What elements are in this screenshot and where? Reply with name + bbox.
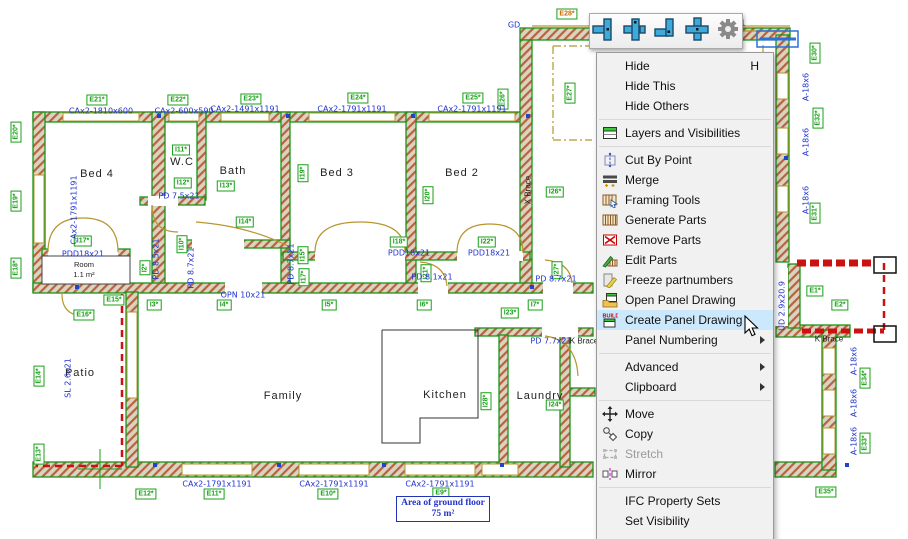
cad-label-gd: GD [508,21,520,30]
menu-item-label: Layers and Visibilities [625,126,773,140]
menu-item-label: Set Visibility [625,514,773,528]
menu-item-label: Hide Others [625,99,773,113]
merge-icon [600,172,620,188]
wall-junction-corner-button[interactable] [653,18,680,45]
menu-item-label: Hide This [625,79,773,93]
freeze-icon [600,272,620,288]
edit-icon [600,252,620,268]
cad-label-a-18x6: A-18x6 [850,347,859,375]
menu-item-move[interactable]: Move [597,404,773,424]
part-tag-i12[interactable]: I12* [174,178,192,189]
part-tag-e30[interactable]: E30* [810,42,821,63]
part-tag-e28[interactable]: E28* [556,9,577,20]
part-tag-e23[interactable]: E23* [240,94,261,105]
menu-item-icon-empty [600,493,620,509]
menu-item-label: Advanced [625,360,760,374]
cad-label-cax2-1791x1191: CAx2-1791x1191 [182,480,251,489]
menu-item-label: Mirror [625,467,773,481]
part-tag-e35[interactable]: E35* [815,487,836,498]
menu-separator [599,119,771,120]
cad-label-cax2-1491x1191: CAx2-1491x1191 [210,105,279,114]
openpanel-icon [600,292,620,308]
room-label-bed-3: Bed 3 [320,167,354,179]
menu-item-hide[interactable]: HideH [597,56,773,76]
part-tag-e25[interactable]: E25* [462,93,483,104]
part-tag-e16[interactable]: E16* [73,310,94,321]
submenu-arrow-icon [760,363,765,371]
part-tag-i7[interactable]: I7* [528,300,543,311]
wall-junction-toolbar [589,13,743,49]
cad-label-a-18x6: A-18x6 [850,389,859,417]
stretch-icon [600,446,620,462]
menu-item-label: Remove Parts [625,233,773,247]
part-tag-i3[interactable]: I3* [147,300,162,311]
cad-label-sl-2-6x21: SL 2.6x21 [64,358,73,398]
menu-item-remove-parts[interactable]: Remove Parts [597,230,773,250]
menu-item-hide-this[interactable]: Hide This [597,76,773,96]
area-annotation-line1: Area of ground floor [397,498,489,509]
area-annotation-box[interactable]: Area of ground floor 75 m² [396,496,490,522]
cad-label-opn-10x21: OPN 10x21 [221,291,266,300]
menu-item-hide-others[interactable]: Hide Others [597,96,773,116]
part-tag-e12[interactable]: E12* [135,489,156,500]
part-tag-e27[interactable]: E27* [565,82,576,103]
part-tag-e10[interactable]: E10* [317,489,338,500]
layers-icon [600,125,620,141]
menu-item-advanced[interactable]: Advanced [597,357,773,377]
brace-label-x-brace: X Brace [524,176,533,204]
part-tag-i5[interactable]: I5* [322,300,337,311]
remove-icon [600,232,620,248]
part-tag-i15[interactable]: I15* [298,246,309,264]
part-tag-e14[interactable]: E14* [34,365,45,386]
cad-label-ud-2-9x20-9: UD 2.9x20.9 [778,281,787,331]
cad-label-pd-8-1x21: PD 8.1x21 [411,273,452,282]
menu-item-open-panel-drawing[interactable]: Open Panel Drawing [597,290,773,310]
menu-item-icon-empty [600,379,620,395]
move-icon [600,406,620,422]
part-tag-e32[interactable]: E32* [813,107,824,128]
copy-icon [600,426,620,442]
menu-item-label: Framing Tools [625,193,773,207]
mirror-icon [600,466,620,482]
cad-label-cax2-600x590: CAx2-600x590 [154,107,213,116]
cad-label-pd-8-5x21: PD 8.5x21 [152,238,161,279]
menu-item-icon-empty [600,332,620,348]
menu-item-label: IFC Property Sets [625,494,773,508]
cad-label-cax2-1791x1191: CAx2-1791x1191 [70,175,79,244]
context-menu: HideHHide ThisHide OthersLayers and Visi… [596,52,774,539]
part-tag-e18[interactable]: E18* [11,257,22,278]
menu-item-label: Open Panel Drawing [625,293,773,307]
menu-separator [599,146,771,147]
menu-item-label: Clipboard [625,380,760,394]
menu-item-icon-empty [600,359,620,375]
cut-icon [600,152,620,168]
part-tag-e21[interactable]: E21* [86,95,107,106]
room-label-bed-4: Bed 4 [80,168,114,180]
part-tag-i17[interactable]: I17* [299,268,310,286]
room-small-label: Room 1.1 m² [73,260,94,280]
createpanel-icon: BUILD [600,312,620,328]
room-small-area: 1.1 m² [73,270,94,279]
menu-item-framing-tools[interactable]: Framing Tools [597,190,773,210]
menu-item-shortcut: H [750,59,759,73]
room-label-w-c: W.C [170,156,194,168]
cad-label-cax2-1791x1191: CAx2-1791x1191 [405,480,474,489]
menu-item-cut-by-point[interactable]: Cut By Point [597,150,773,170]
menu-item-label: Panel Numbering [625,333,760,347]
menu-separator [599,487,771,488]
menu-item-copy[interactable]: Copy [597,424,773,444]
part-tag-e15[interactable]: E15* [103,295,124,306]
menu-item-merge[interactable]: Merge [597,170,773,190]
room-small-name: Room [74,260,94,269]
cad-label-pd-8-7x21: PD 8.7x21 [535,275,576,284]
part-tag-e33[interactable]: E33* [860,432,871,453]
menu-item-set-visibility[interactable]: Set Visibility [597,511,773,531]
menu-item-label: Copy [625,427,773,441]
brace-label-k-brace: K Brace [570,337,598,346]
cad-label-pdd18x21: PDD18x21 [388,249,430,258]
part-tag-i19[interactable]: I19* [298,164,309,182]
part-tag-e31[interactable]: E31* [810,202,821,223]
cad-label-a-18x6: A-18x6 [802,73,811,101]
menu-item-icon-empty [600,513,620,529]
mouse-cursor-icon [744,315,762,346]
menu-item-ifc-property-sets[interactable]: IFC Property Sets [597,491,773,511]
menu-item-label: Move [625,407,773,421]
cad-label-a-18x6: A-18x6 [802,186,811,214]
menu-item-icon-empty [600,78,620,94]
cad-label-pdd18x21: PDD18x21 [62,250,104,259]
menu-item-generate-parts[interactable]: Generate Parts [597,210,773,230]
part-tag-e13[interactable]: E13* [34,443,45,464]
menu-item-mirror[interactable]: Mirror [597,464,773,484]
cad-label-pd-8-7x21: PD 8.7x21 [187,247,196,288]
menu-item-edit-parts[interactable]: Edit Parts [597,250,773,270]
part-tag-i20[interactable]: I20* [423,186,434,204]
part-tag-i18[interactable]: I18* [390,237,408,248]
generate-icon [600,212,620,228]
app-viewport: Room 1.1 m² Bed 4W.CBathBed 3Bed 2PatioF… [0,0,908,539]
framing-icon [600,192,620,208]
cad-label-a-18x6: A-18x6 [802,128,811,156]
cad-label-cax2-1810x600: CAx2-1810x600 [69,107,133,116]
wall-junction-t-right-button[interactable] [591,18,618,45]
menu-item-label: Stretch [625,447,773,461]
room-label-family: Family [264,390,302,402]
cad-label-cax2-1791x1191: CAx2-1791x1191 [299,480,368,489]
part-tag-e24[interactable]: E24* [347,93,368,104]
wall-junction-cross-icon [684,16,710,47]
brace-label-k-brace: K Brace [815,335,843,344]
menu-item-label: Cut By Point [625,153,773,167]
wall-junction-cross-offset-button[interactable] [622,18,649,45]
part-tag-e11[interactable]: E11* [204,489,225,500]
part-tag-i23[interactable]: I23* [501,308,519,319]
part-tag-e2[interactable]: E2* [831,300,848,311]
part-tag-e19[interactable]: E19* [11,190,22,211]
menu-item-layers-and-visibilities[interactable]: Layers and Visibilities [597,123,773,143]
menu-item-label: Edit Parts [625,253,773,267]
part-tag-i14[interactable]: I14* [236,217,254,228]
room-label-bath: Bath [220,165,247,177]
menu-item-icon-empty [600,58,620,74]
menu-item-clipboard[interactable]: Clipboard [597,377,773,397]
menu-item-icon-empty [600,98,620,114]
menu-separator [599,400,771,401]
cad-label-pd-8-7x21: PD 8.7x21 [287,243,296,284]
room-label-kitchen: Kitchen [423,389,467,401]
part-tag-i22[interactable]: I22* [478,237,496,248]
part-tag-e1[interactable]: E1* [806,286,823,297]
cad-label-a-18x6: A-18x6 [850,427,859,455]
part-tag-i2[interactable]: I2* [140,261,151,276]
cad-label-pdd18x21: PDD18x21 [468,249,510,258]
wall-junction-cross-offset-icon [622,16,648,47]
part-tag-i6[interactable]: I6* [417,300,432,311]
wall-junction-corner-icon [653,16,679,47]
part-tag-e22[interactable]: E22* [167,95,188,106]
part-tag-i13[interactable]: I13* [217,181,235,192]
part-tag-i11[interactable]: I11* [172,145,190,156]
wall-junction-cross-button[interactable] [684,18,711,45]
part-tag-i4[interactable]: I4* [217,300,232,311]
menu-item-label: Freeze partnumbers [625,273,773,287]
area-annotation-line2: 75 m² [397,509,489,520]
menu-item-label: Generate Parts [625,213,773,227]
submenu-arrow-icon [760,383,765,391]
cad-label-cax2-1791x1191: CAx2-1791x1191 [317,105,386,114]
wall-junction-t-right-icon [591,16,617,47]
cad-label-cax2-1791x1191: CAx2-1791x1191 [437,105,506,114]
menu-item-label: Merge [625,173,773,187]
part-tag-i24[interactable]: I24* [546,400,564,411]
menu-item-stretch: Stretch [597,444,773,464]
part-tag-i26[interactable]: I26* [546,187,564,198]
cad-label-pd-7-7x21: PD 7.7x21 [530,337,571,346]
part-tag-e34[interactable]: E34* [860,367,871,388]
part-tag-e20[interactable]: E20* [11,121,22,142]
menu-item-label: Hide [625,59,750,73]
part-tag-i28[interactable]: I28* [481,392,492,410]
cad-label-pd-7-5x21: PD 7.5x21 [158,192,199,201]
settings-gear-button[interactable] [715,18,742,45]
room-label-bed-2: Bed 2 [445,167,479,179]
menu-item-freeze-partnumbers[interactable]: Freeze partnumbers [597,270,773,290]
menu-separator [599,353,771,354]
settings-gear-icon [715,16,741,47]
